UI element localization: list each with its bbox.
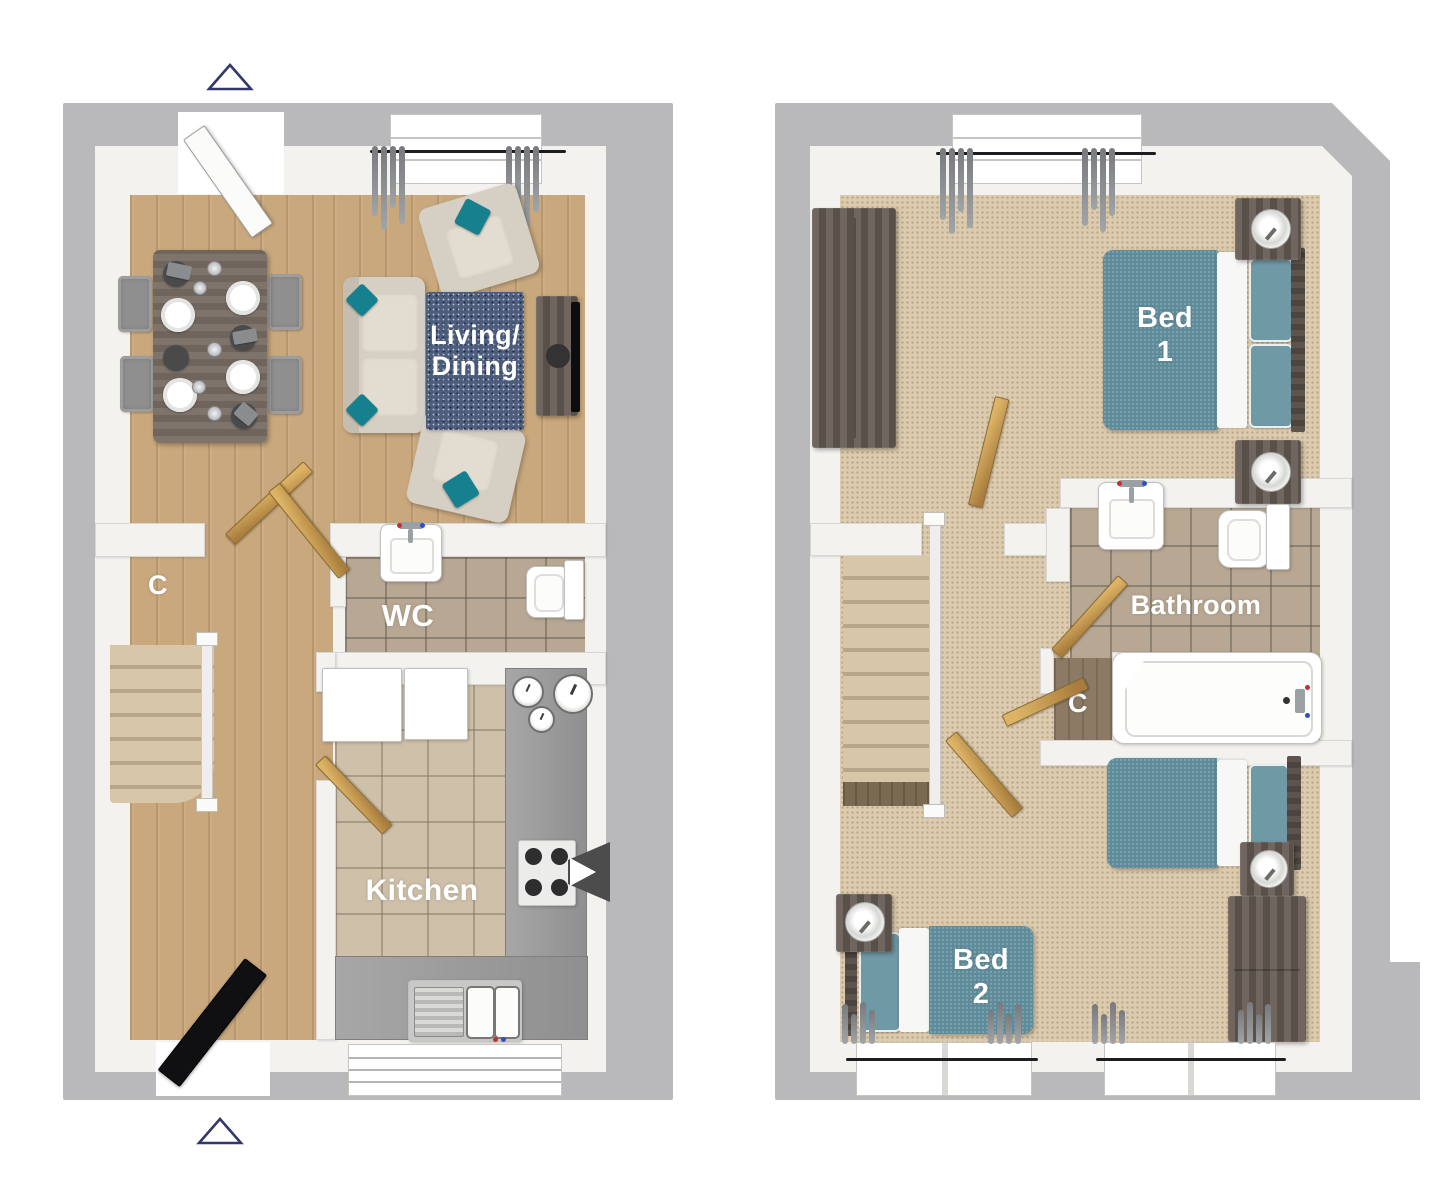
curtain-rod (1096, 1058, 1286, 1061)
plate (226, 281, 260, 315)
dining-chair (268, 356, 302, 414)
placemat (163, 345, 189, 371)
wall-bathroom-left-upper (1046, 508, 1070, 582)
bathtub (1112, 652, 1322, 744)
pot (512, 676, 544, 708)
single-bed (1107, 758, 1217, 868)
floor-plan-canvas: Living/ Dining C WC Kitchen (0, 0, 1445, 1177)
lamp (1251, 209, 1291, 249)
wall-bed1-landing-left (810, 523, 922, 556)
banister (201, 640, 213, 806)
dining-chair (120, 356, 154, 412)
wc-sink (380, 524, 442, 582)
salt-shaker (207, 406, 222, 421)
newel-post (196, 798, 218, 812)
room-label-bathroom: Bathroom (1118, 590, 1274, 621)
pepper-shaker (192, 380, 206, 394)
first-floor-wall-step (1385, 962, 1420, 1100)
salt-shaker (207, 261, 222, 276)
plate (226, 360, 260, 394)
room-label-living-dining: Living/ Dining (400, 320, 550, 383)
wardrobe (812, 208, 896, 448)
bathroom-sink (1098, 482, 1164, 550)
dining-chair (118, 276, 152, 332)
pot (553, 674, 593, 714)
curtains (940, 148, 973, 234)
room-label-bed1: Bed 1 (1100, 302, 1230, 369)
curtains (1082, 148, 1115, 232)
wall-cupboard-left (1040, 648, 1054, 694)
curtain-rod (846, 1058, 1038, 1061)
staircase (110, 645, 214, 803)
wall-living-wc (330, 523, 606, 557)
entrance-marker-icon (196, 1116, 244, 1146)
curtains (988, 1002, 1021, 1044)
bed-pillow (1249, 258, 1293, 342)
toilet (1218, 510, 1270, 568)
bed2-window (1104, 1042, 1276, 1096)
newel-post (196, 632, 218, 646)
kitchen-appliance (404, 668, 468, 740)
fridge (322, 668, 402, 742)
room-label-wc: WC (372, 598, 444, 634)
curtains (372, 146, 405, 230)
salt-shaker (207, 342, 222, 357)
curtains (842, 1002, 875, 1044)
staircase (843, 556, 941, 786)
banister (929, 520, 941, 812)
newel-post (923, 512, 945, 526)
bed-pillow (1249, 344, 1293, 428)
plate (161, 298, 195, 332)
kitchen-window (348, 1044, 562, 1096)
entrance-marker-icon (206, 62, 254, 92)
curtains (1092, 1002, 1125, 1044)
toilet-cistern (564, 560, 584, 620)
tv (571, 302, 580, 412)
hob (518, 840, 576, 906)
lamp (845, 902, 885, 942)
curtains (1238, 1002, 1271, 1044)
room-label-cupboard: C (130, 570, 186, 601)
pot (528, 706, 555, 733)
kitchen-sink (408, 980, 522, 1042)
lamp (1250, 850, 1288, 888)
stair-bottom-tread (843, 782, 941, 806)
wall-kitchen-left-lower (316, 780, 336, 1040)
lamp (1251, 452, 1291, 492)
toilet-cistern (1266, 504, 1290, 570)
wall-living-hall (95, 523, 205, 557)
room-label-kitchen: Kitchen (352, 874, 492, 909)
dining-chair (268, 274, 302, 330)
bed2-window (856, 1042, 1032, 1096)
headboard (1291, 248, 1305, 432)
newel-post (923, 804, 945, 818)
pepper-shaker (193, 281, 207, 295)
